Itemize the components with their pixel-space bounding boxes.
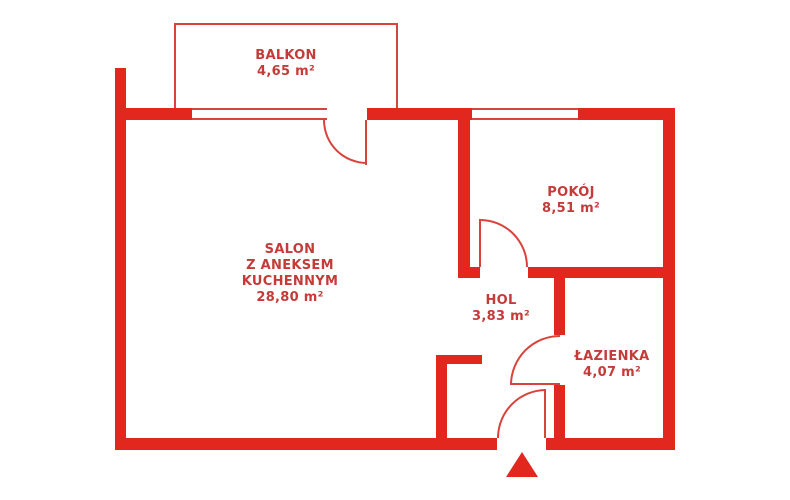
entry-door-arc: [497, 389, 546, 438]
wall-bottom-right-segment: [546, 438, 675, 450]
wall-hol-top-left-jamb: [458, 267, 480, 278]
wall-top-middle-segment: [367, 108, 472, 120]
lazienka-label: ŁAZIENKA 4,07 m²: [512, 349, 712, 381]
lazienka-name: ŁAZIENKA: [512, 349, 712, 365]
balkon-area: 4,65 m²: [186, 64, 386, 80]
wall-bottom-left-segment: [115, 438, 497, 450]
wall-pokoj-bottom: [528, 267, 663, 278]
salon-name-line2: Z ANEKSEM: [190, 258, 390, 274]
wall-outer-left: [115, 68, 126, 449]
balcony-door-arc: [323, 120, 367, 164]
wall-salon-pokoj-divider: [458, 120, 470, 278]
salon-name-line1: SALON: [190, 242, 390, 258]
wall-top-right-segment: [578, 108, 663, 120]
lazienka-area: 4,07 m²: [512, 365, 712, 381]
salon-label: SALON Z ANEKSEM KUCHENNYM 28,80 m²: [190, 242, 390, 306]
balkon-label: BALKON 4,65 m²: [186, 48, 386, 80]
wall-outer-right: [663, 108, 675, 450]
balcony-door-leaf: [365, 120, 367, 165]
wall-top-left-segment: [115, 108, 192, 120]
wall-entry-stub-vertical: [436, 355, 447, 438]
salon-balcony-window: [192, 108, 327, 120]
hol-label: HOL 3,83 m²: [401, 293, 601, 325]
wall-entry-stub-horizontal: [436, 355, 482, 364]
pokoj-door-leaf: [479, 219, 481, 267]
pokoj-area: 8,51 m²: [471, 201, 671, 217]
hol-name: HOL: [401, 293, 601, 309]
floor-plan: BALKON 4,65 m² SALON Z ANEKSEM KUCHENNYM…: [0, 0, 790, 500]
pokoj-name: POKÓJ: [471, 185, 671, 201]
balkon-name: BALKON: [186, 48, 386, 64]
entrance-arrow-icon: [506, 452, 538, 477]
salon-name-line3: KUCHENNYM: [190, 274, 390, 290]
hol-area: 3,83 m²: [401, 309, 601, 325]
entry-door-leaf: [544, 389, 546, 438]
pokoj-label: POKÓJ 8,51 m²: [471, 185, 671, 217]
wall-hol-lazienka-lower: [554, 385, 565, 438]
salon-area: 28,80 m²: [190, 290, 390, 306]
pokoj-window: [472, 108, 578, 120]
lazienka-door-leaf: [510, 383, 560, 385]
pokoj-door-arc: [480, 219, 528, 267]
